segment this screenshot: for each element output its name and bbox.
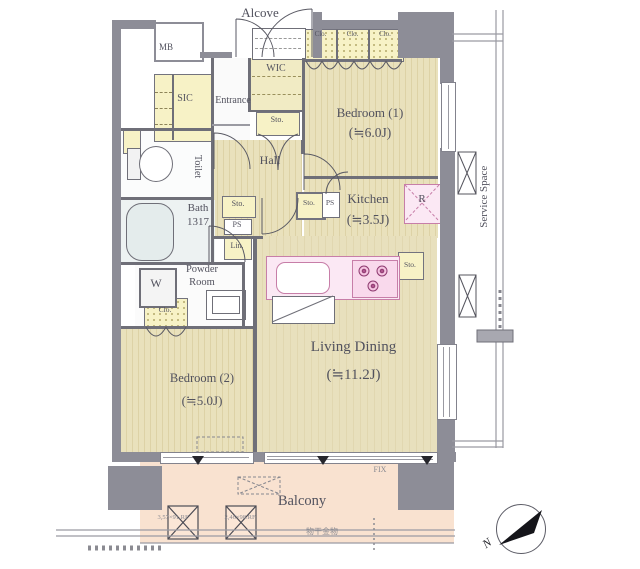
ps-hall-label: PS xyxy=(226,221,248,229)
stove xyxy=(352,260,398,298)
bedroom1-label: Bedroom (1) xyxy=(305,106,435,120)
vanity-sink xyxy=(212,296,240,314)
service-space-label: Service Space xyxy=(479,142,491,252)
sto-hall-label: Sto. xyxy=(224,200,252,208)
sto-counter-label: Sto. xyxy=(397,261,423,269)
window-bedroom2 xyxy=(160,452,254,464)
compass xyxy=(496,504,546,554)
window-living-sliding xyxy=(264,452,438,464)
wic-upper-shelf xyxy=(252,28,306,60)
bath-label: Bath xyxy=(176,203,220,215)
bedroom1-size: (≒6.0J) xyxy=(305,126,435,140)
mb-label: MB xyxy=(154,43,178,52)
living-dining-label: Living Dining xyxy=(266,340,441,356)
laundry-hardware-label: 物干金物 xyxy=(300,528,344,536)
washer-label: W xyxy=(139,277,173,290)
hall-label: Hall xyxy=(240,154,300,167)
refrigerator-label: R xyxy=(404,194,440,206)
entrance-label: Entrance xyxy=(206,96,260,107)
bedroom2-floor xyxy=(121,328,255,454)
powder-room-label-2: Room xyxy=(172,277,232,288)
bath-size: 1317 xyxy=(176,217,220,229)
floor-plan: Alcove MB WIC Clo. Clo. Clo. SIC Entranc… xyxy=(0,0,640,569)
wic-label: WIC xyxy=(256,64,296,75)
ac-dim-label-1: 3,57×91.RF xyxy=(142,515,204,522)
powder-room-label-1: Powder xyxy=(170,264,234,275)
ld-counter xyxy=(272,296,335,324)
service-space-unit xyxy=(458,152,476,317)
linen-label: Lin. xyxy=(226,242,248,250)
balcony-right-block xyxy=(398,458,454,510)
bedroom2-label: Bedroom (2) xyxy=(138,372,266,385)
living-dining-size: (≒11.2J) xyxy=(266,368,441,384)
closet-label: Clo. xyxy=(337,31,368,38)
toilet-label: Toilet xyxy=(186,138,202,196)
service-partition xyxy=(477,330,513,342)
service-space-lattice xyxy=(452,10,503,448)
window-right-kitchen xyxy=(441,82,456,152)
alcove-label: Alcove xyxy=(205,6,315,20)
top-right-block xyxy=(398,12,454,58)
bathtub xyxy=(126,203,174,261)
closet-label: Clo. xyxy=(369,31,401,38)
sic-label: SIC xyxy=(163,94,207,105)
balcony-label: Balcony xyxy=(252,494,352,509)
closet-label: Clo. xyxy=(305,31,336,38)
ac-dim-label-2: 2,46×98.RF xyxy=(210,515,270,522)
kitchen-size: (≒3.5J) xyxy=(310,213,426,227)
fix-label: FIX xyxy=(366,466,394,474)
sto-wic-label: Sto. xyxy=(258,116,296,124)
kitchen-sink xyxy=(276,262,330,294)
north-label: N xyxy=(476,533,498,554)
toilet-bowl xyxy=(139,146,173,182)
bedroom2-closet-label: Clo. xyxy=(144,306,186,314)
balcony-left-block xyxy=(108,466,162,510)
bedroom2-size: (≒5.0J) xyxy=(138,394,266,408)
